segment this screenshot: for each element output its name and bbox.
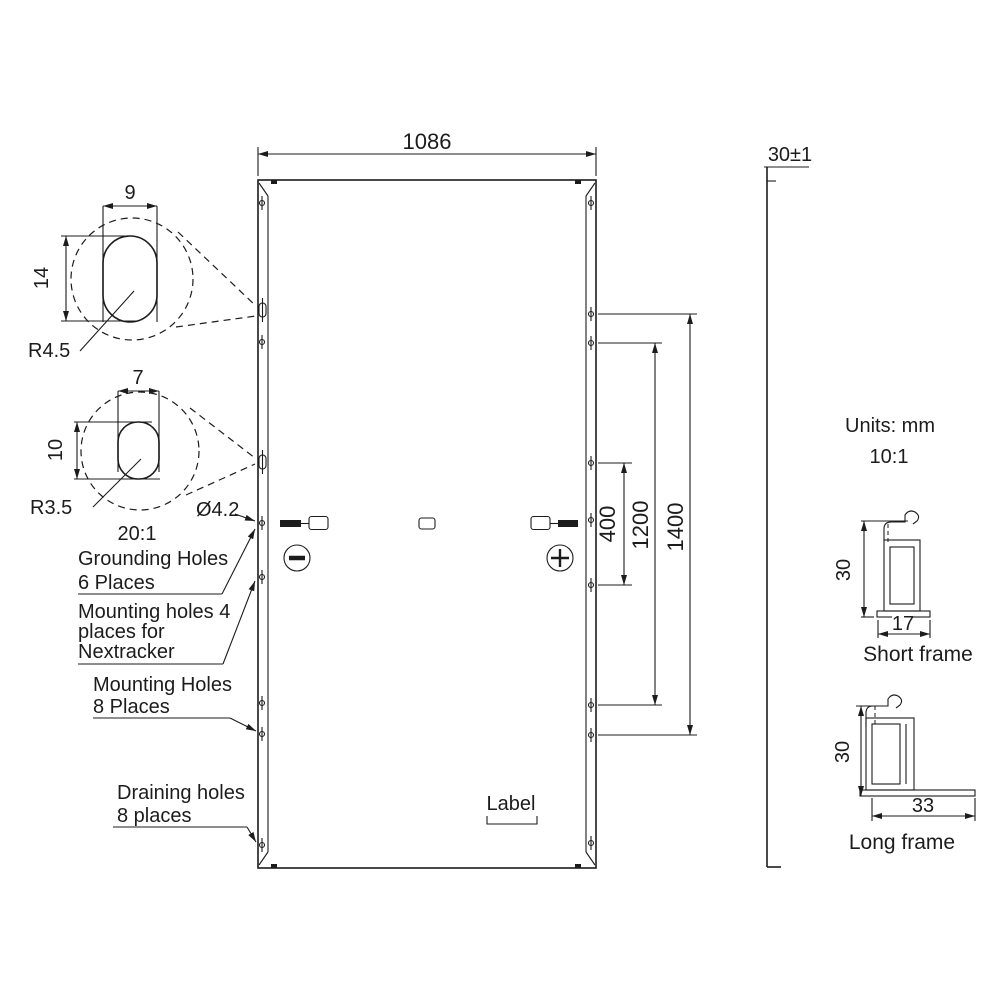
dim-400-text: 400 [595, 506, 620, 543]
frame-hook-profile [884, 511, 919, 540]
positive-cable-connector-icon [558, 520, 578, 527]
long-frame-section: 30 33 Long frame [832, 695, 975, 854]
scale-note: 10:1 [870, 446, 909, 468]
long-frame-height: 30 [832, 741, 854, 763]
drawing-notes: Units: mm 10:1 [845, 415, 935, 468]
dim-1200-text: 1200 [628, 501, 653, 550]
technical-drawing-solar-panel-back-view: 1086 30±1 9 14 R4.5 7 [0, 0, 1000, 1000]
detail-circle [81, 392, 199, 510]
dim-1400-text: 1400 [663, 503, 688, 552]
junction-boxes [280, 517, 578, 572]
dim-slot-radius: R3.5 [30, 497, 72, 519]
dim-slot-radius: R4.5 [28, 340, 70, 362]
negative-terminal-icon [284, 545, 310, 571]
edge-mark [575, 864, 581, 868]
junction-box-center [419, 518, 435, 529]
dim-width-text: 1086 [403, 129, 452, 154]
junction-box-left [309, 517, 328, 530]
edge-mark [271, 864, 277, 868]
short-frame-caption: Short frame [863, 643, 973, 666]
dim-slot-width: 9 [124, 182, 135, 204]
nextracker-line3: Nextracker [78, 641, 175, 663]
long-frame-width: 33 [912, 795, 934, 817]
label-bracket [487, 816, 537, 824]
nextracker-line1: Mounting holes 4 [78, 601, 230, 623]
draining-line2: 8 places [117, 805, 192, 827]
edge-mark [271, 180, 277, 184]
dimension-1086: 1086 [258, 129, 596, 176]
edge-mark [575, 180, 581, 184]
mounting-line2: 8 Places [93, 696, 170, 718]
left-frame-holes [259, 196, 266, 852]
dim-thickness-text: 30±1 [768, 144, 812, 166]
long-frame-caption: Long frame [849, 831, 955, 854]
callout-hole-diameter: Ø4.2 [196, 499, 255, 521]
positive-terminal-icon [547, 545, 573, 571]
short-frame-section: 30 17 Short frame [833, 511, 973, 666]
detail-scale-text: 20:1 [118, 523, 157, 545]
detail-view-large-slot: 9 14 R4.5 [28, 182, 256, 362]
dim-slot-height: 14 [31, 267, 53, 289]
units-note: Units: mm [845, 415, 935, 437]
hole-diameter-text: Ø4.2 [196, 499, 239, 521]
label-area: Label [487, 793, 537, 824]
short-frame-height: 30 [833, 559, 855, 581]
frame-hook-profile [866, 695, 902, 727]
slot-shape [118, 422, 159, 479]
junction-box-right [531, 517, 550, 530]
slot-shape [103, 236, 157, 322]
label-text: Label [487, 793, 536, 815]
drawing-canvas: 1086 30±1 9 14 R4.5 7 [0, 0, 1000, 1000]
draining-line1: Draining holes [117, 782, 245, 804]
grounding-line1: Grounding Holes [78, 548, 228, 570]
callout-mounting-holes: Mounting Holes 8 Places [93, 674, 256, 731]
dim-slot-height: 10 [45, 439, 67, 461]
nextracker-line2: places for [78, 621, 165, 643]
right-frame-holes [589, 196, 594, 850]
grounding-line2: 6 Places [78, 572, 155, 594]
negative-cable-connector-icon [280, 520, 301, 527]
callout-grounding-holes: Grounding Holes 6 Places [78, 529, 255, 594]
dim-slot-width: 7 [132, 367, 143, 389]
mounting-line1: Mounting Holes [93, 674, 232, 696]
short-frame-width: 17 [892, 613, 914, 635]
panel-side-view: 30±1 [764, 144, 812, 867]
right-dimensions: 400 1200 1400 [595, 314, 697, 735]
callout-draining-holes: Draining holes 8 places [113, 782, 256, 842]
